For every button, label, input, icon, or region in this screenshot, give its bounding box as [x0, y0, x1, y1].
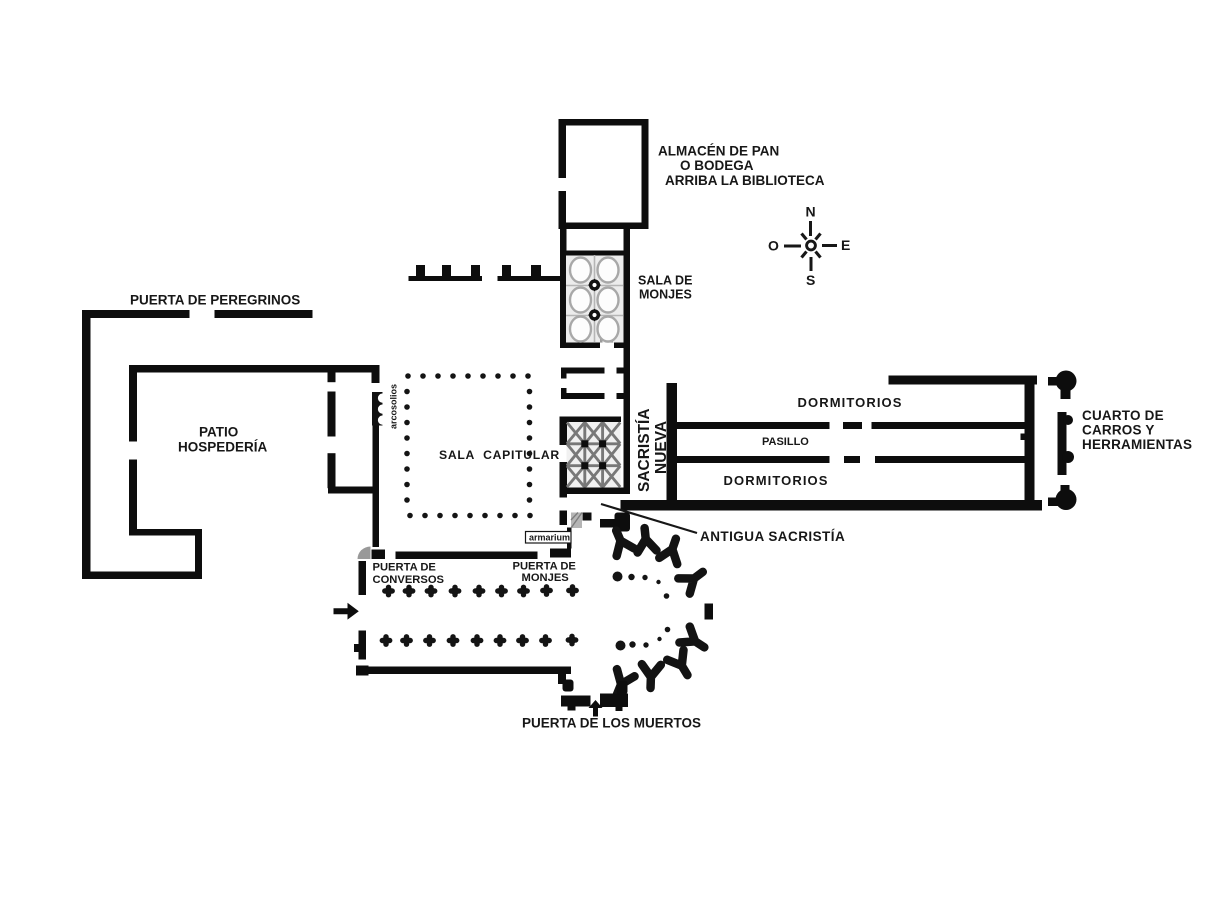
svg-text:DORMITORIOS: DORMITORIOS: [724, 473, 829, 488]
svg-text:PATIO: PATIO: [199, 425, 238, 440]
svg-text:ANTIGUA SACRISTÍA: ANTIGUA SACRISTÍA: [700, 529, 845, 544]
svg-text:DORMITORIOS: DORMITORIOS: [798, 395, 903, 410]
svg-text:SALA CAPITULAR: SALA CAPITULAR: [439, 448, 560, 462]
svg-text:armarium: armarium: [529, 533, 570, 543]
svg-text:PUERTA DE: PUERTA DE: [373, 562, 437, 574]
svg-text:ALMACÉN DE PAN: ALMACÉN DE PAN: [658, 144, 779, 159]
svg-text:SACRISTÍA: SACRISTÍA: [636, 408, 653, 492]
svg-text:CONVERSOS: CONVERSOS: [373, 574, 445, 586]
svg-text:arcosolios: arcosolios: [389, 384, 399, 429]
svg-text:O: O: [768, 238, 779, 254]
svg-text:CARROS Y: CARROS Y: [1082, 423, 1155, 438]
svg-text:MONJES: MONJES: [522, 572, 570, 584]
svg-text:SALA DE: SALA DE: [638, 274, 692, 288]
svg-text:E: E: [841, 237, 850, 253]
svg-text:PUERTA DE LOS MUERTOS: PUERTA DE LOS MUERTOS: [522, 716, 701, 731]
svg-text:N: N: [806, 204, 816, 220]
svg-text:PASILLO: PASILLO: [762, 436, 809, 448]
svg-text:S: S: [806, 272, 815, 288]
svg-text:MONJES: MONJES: [639, 288, 692, 302]
svg-text:PUERTA DE: PUERTA DE: [513, 561, 577, 573]
svg-text:O BODEGA: O BODEGA: [680, 158, 754, 173]
svg-text:HOSPEDERÍA: HOSPEDERÍA: [178, 440, 268, 455]
svg-text:PUERTA DE PEREGRINOS: PUERTA DE PEREGRINOS: [130, 293, 300, 308]
svg-text:ARRIBA LA BIBLIOTECA: ARRIBA LA BIBLIOTECA: [665, 173, 825, 188]
svg-text:HERRAMIENTAS: HERRAMIENTAS: [1082, 437, 1192, 452]
svg-text:CUARTO DE: CUARTO DE: [1082, 408, 1164, 423]
